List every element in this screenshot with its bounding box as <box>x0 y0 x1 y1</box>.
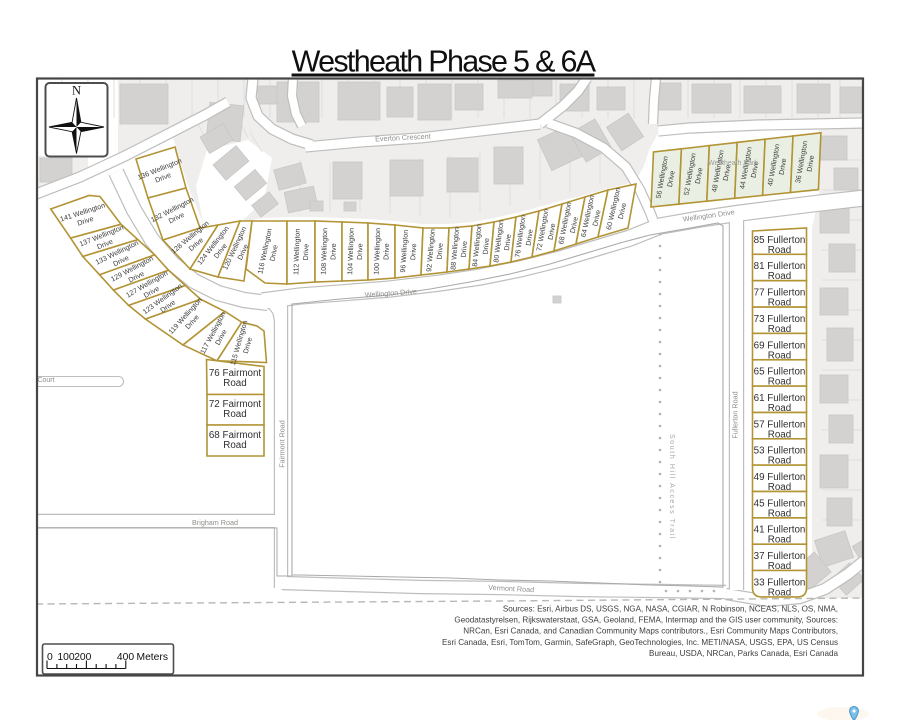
svg-text:Road: Road <box>768 377 791 388</box>
svg-text:Brigham Road: Brigham Road <box>192 518 238 527</box>
svg-text:Road: Road <box>768 429 791 440</box>
svg-text:100 Wellington: 100 Wellington <box>373 228 383 275</box>
svg-text:Westheath Park: Westheath Park <box>708 160 758 167</box>
svg-text:100: 100 <box>57 652 74 663</box>
svg-text:Road: Road <box>768 403 791 414</box>
svg-text:Road: Road <box>768 350 791 361</box>
svg-text:Geodatastyrelsen, Rijkswaterst: Geodatastyrelsen, Rijkswaterstaat, GSA, … <box>454 616 838 625</box>
svg-text:Drive: Drive <box>460 241 469 258</box>
svg-text:Fullerton Road: Fullerton Road <box>731 391 740 438</box>
svg-text:Road: Road <box>768 245 791 256</box>
svg-text:Westheath Phase 5 & 6A: Westheath Phase 5 & 6A <box>292 45 597 79</box>
svg-text:Meters: Meters <box>137 652 168 663</box>
svg-text:Drive: Drive <box>435 243 444 260</box>
svg-text:Drive: Drive <box>329 243 338 260</box>
svg-text:NRCan, Esri Canada, and Canadi: NRCan, Esri Canada, and Canadian Communi… <box>463 627 838 636</box>
svg-text:Fairmont Road: Fairmont Road <box>278 420 287 468</box>
svg-text:Drive: Drive <box>382 243 391 260</box>
svg-text:0: 0 <box>47 652 53 663</box>
svg-text:N: N <box>72 84 81 98</box>
svg-text:Sources: Esri, Airbus DS, USGS: Sources: Esri, Airbus DS, USGS, NGA, NAS… <box>503 605 838 614</box>
svg-text:104 Wellington: 104 Wellington <box>346 228 356 275</box>
svg-text:Drive: Drive <box>409 243 418 260</box>
svg-text:Road: Road <box>768 535 791 546</box>
svg-text:Court: Court <box>37 377 54 384</box>
svg-text:Road: Road <box>768 587 791 598</box>
svg-text:Road: Road <box>768 456 791 467</box>
svg-text:South Hill Access Trail: South Hill Access Trail <box>668 434 675 540</box>
svg-text:Road: Road <box>768 271 791 282</box>
svg-text:108 Wellington: 108 Wellington <box>320 228 330 275</box>
svg-text:Drive: Drive <box>356 243 365 260</box>
svg-text:Esri Canada, Esri, TomTom, Gar: Esri Canada, Esri, TomTom, Garmin, SafeG… <box>442 638 838 647</box>
svg-text:Drive: Drive <box>302 244 311 261</box>
svg-text:Road: Road <box>768 508 791 519</box>
svg-text:Bureau, USDA, NRCan, Parks Can: Bureau, USDA, NRCan, Parks Canada, Esri … <box>649 649 838 658</box>
svg-text:Road: Road <box>768 298 791 309</box>
svg-text:Road: Road <box>768 324 791 335</box>
svg-text:Road: Road <box>223 440 246 451</box>
svg-text:200: 200 <box>74 652 91 663</box>
svg-text:Road: Road <box>223 409 246 420</box>
svg-text:Road: Road <box>768 482 791 493</box>
svg-text:Road: Road <box>768 561 791 572</box>
svg-text:Road: Road <box>223 378 246 389</box>
svg-text:112 Wellington: 112 Wellington <box>292 229 302 276</box>
